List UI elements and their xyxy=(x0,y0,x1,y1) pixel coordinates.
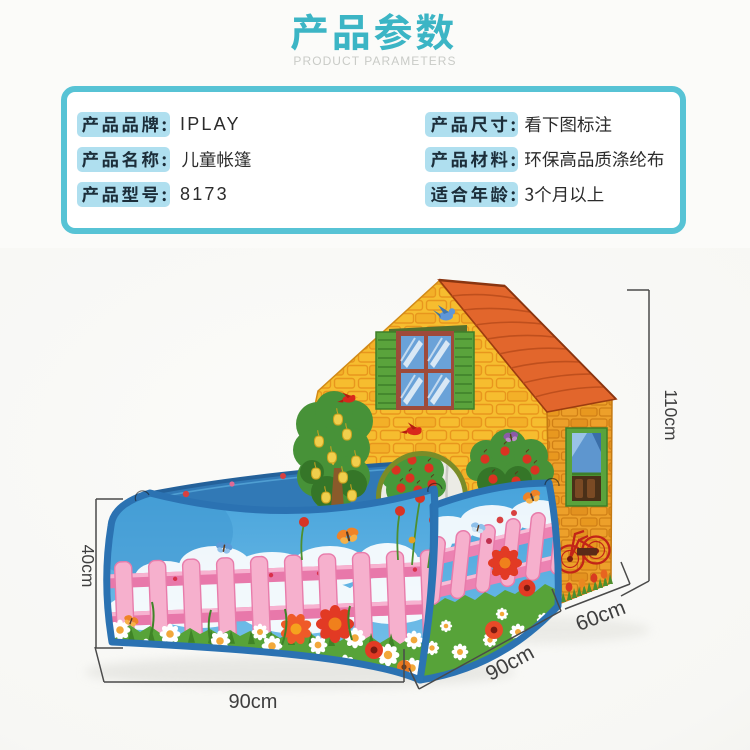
svg-text:90cm: 90cm xyxy=(229,691,278,713)
svg-text:110cm: 110cm xyxy=(661,389,681,440)
svg-text:40cm: 40cm xyxy=(78,545,98,588)
